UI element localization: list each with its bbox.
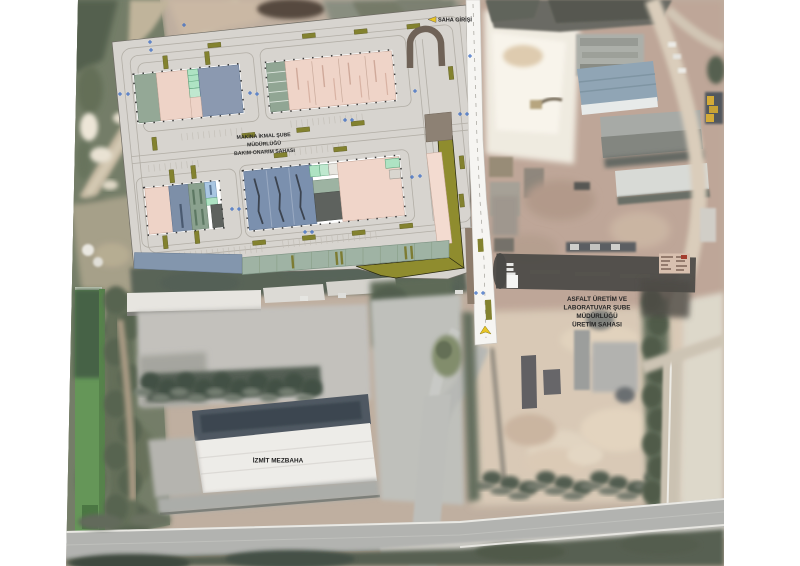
svg-text:İZMİT MEZBAHA: İZMİT MEZBAHA [253,456,304,465]
svg-text:MÜDÜRLÜĞÜ: MÜDÜRLÜĞÜ [576,311,618,320]
svg-text:SAHA GİRİŞİ: SAHA GİRİŞİ [438,17,472,24]
svg-text:ASFALT ÜRETİM VE: ASFALT ÜRETİM VE [567,294,627,303]
svg-text:ÜRETİM SAHASI: ÜRETİM SAHASI [572,320,622,329]
svg-text:LABORATUVAR ŞUBE: LABORATUVAR ŞUBE [564,305,631,312]
